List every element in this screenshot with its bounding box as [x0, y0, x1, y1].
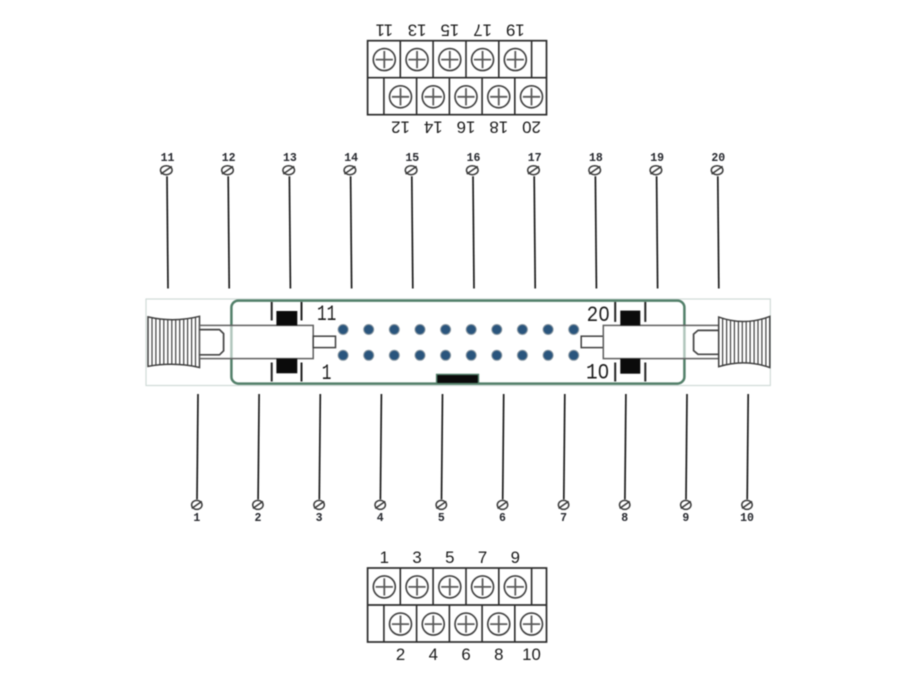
- svg-text:1: 1: [322, 361, 332, 386]
- svg-text:16: 16: [467, 152, 481, 165]
- svg-text:10: 10: [740, 512, 754, 525]
- svg-text:16: 16: [457, 117, 476, 136]
- svg-text:2: 2: [396, 645, 405, 664]
- svg-text:5: 5: [438, 512, 445, 525]
- svg-text:4: 4: [377, 512, 384, 525]
- svg-text:8: 8: [621, 512, 628, 525]
- svg-text:19: 19: [506, 20, 525, 39]
- svg-text:20: 20: [522, 117, 541, 136]
- svg-text:14: 14: [424, 117, 443, 136]
- svg-text:7: 7: [478, 548, 487, 567]
- svg-text:5: 5: [445, 548, 454, 567]
- svg-text:17: 17: [528, 152, 542, 165]
- svg-text:17: 17: [473, 20, 492, 39]
- svg-text:6: 6: [499, 512, 506, 525]
- svg-text:11: 11: [317, 302, 336, 327]
- svg-text:13: 13: [283, 152, 297, 165]
- svg-text:3: 3: [412, 548, 421, 567]
- svg-text:11: 11: [161, 152, 175, 165]
- svg-text:20: 20: [587, 304, 610, 328]
- svg-text:10: 10: [586, 361, 609, 385]
- svg-text:20: 20: [711, 152, 725, 165]
- svg-text:13: 13: [408, 20, 427, 39]
- svg-text:15: 15: [440, 20, 459, 39]
- svg-text:18: 18: [589, 152, 603, 165]
- svg-text:10: 10: [522, 645, 541, 664]
- svg-text:4: 4: [429, 645, 438, 664]
- svg-text:1: 1: [380, 548, 389, 567]
- svg-text:2: 2: [254, 512, 261, 525]
- svg-text:15: 15: [405, 152, 419, 165]
- svg-text:1: 1: [193, 512, 200, 525]
- svg-text:9: 9: [511, 548, 520, 567]
- svg-text:12: 12: [222, 152, 236, 165]
- svg-text:9: 9: [682, 512, 689, 525]
- svg-text:11: 11: [376, 20, 393, 39]
- svg-text:12: 12: [391, 117, 410, 136]
- svg-text:6: 6: [461, 645, 470, 664]
- svg-text:8: 8: [494, 645, 503, 664]
- svg-text:18: 18: [489, 117, 508, 136]
- svg-text:19: 19: [650, 152, 664, 165]
- svg-text:7: 7: [560, 512, 567, 525]
- svg-text:14: 14: [344, 152, 358, 165]
- svg-text:3: 3: [316, 512, 323, 525]
